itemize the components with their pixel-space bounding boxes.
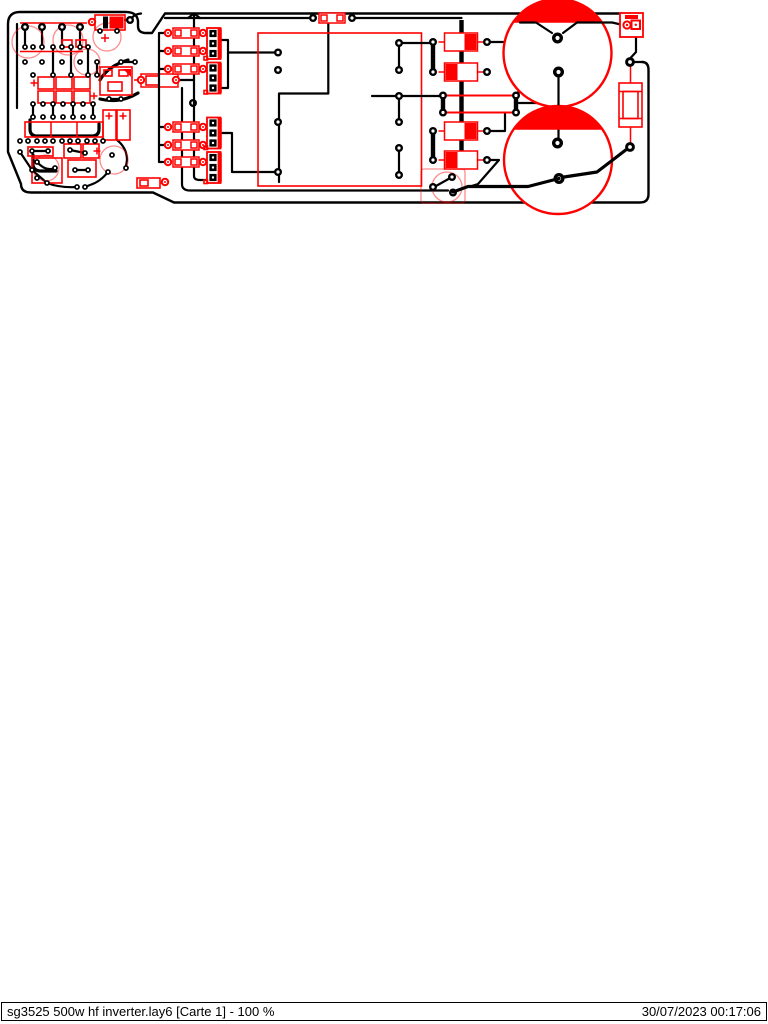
- status-bar: sg3525 500w hf inverter.lay6 [Carte 1] -…: [1, 1002, 767, 1021]
- status-timestamp: 30/07/2023 00:17:06: [642, 1004, 761, 1019]
- terminal-blocks: [204, 28, 222, 184]
- dc-input-connector: [620, 13, 643, 37]
- capacitor-polarity-mark-bottom: [514, 106, 602, 129]
- transformer-outline: [258, 33, 422, 186]
- right-section: [619, 13, 643, 152]
- middle-section: [159, 13, 462, 191]
- fuse: [619, 83, 642, 127]
- pcb-layout-drawing: [0, 0, 768, 232]
- status-file-label: sg3525 500w hf inverter.lay6 [Carte 1] -…: [7, 1004, 274, 1019]
- filter-capacitors: [504, 0, 622, 214]
- pcb-layout: [0, 0, 768, 232]
- wire-jumper: [421, 169, 465, 203]
- print-preview-page: sg3525 500w hf inverter.lay6 [Carte 1] -…: [0, 0, 768, 1024]
- gate-resistors: [165, 28, 206, 167]
- capacitor-polarity-mark-top: [513, 0, 601, 22]
